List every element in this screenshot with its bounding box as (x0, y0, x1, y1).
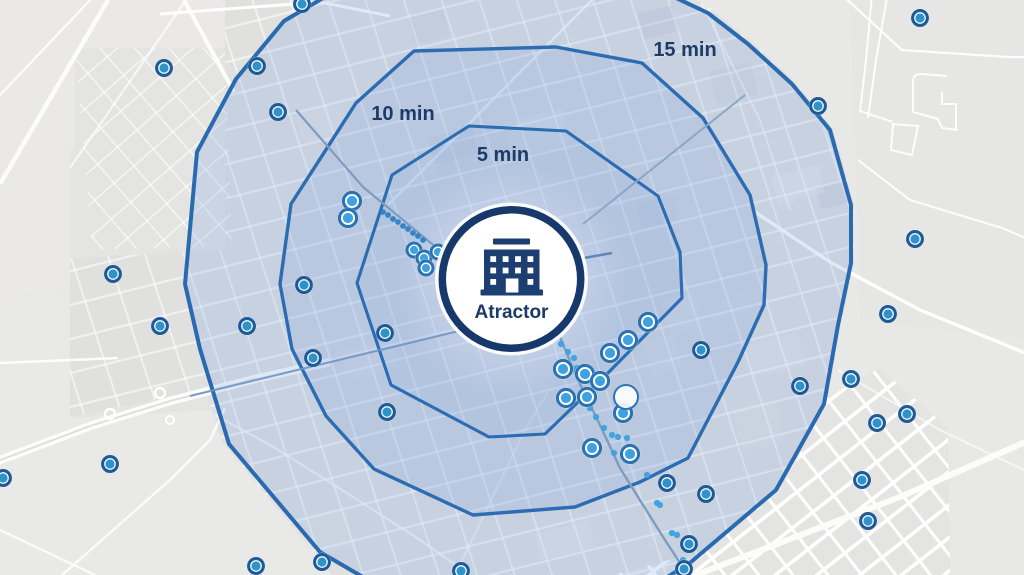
svg-text:5 min: 5 min (477, 144, 529, 166)
svg-text:Atractor: Atractor (475, 302, 550, 323)
svg-text:15 min: 15 min (653, 39, 716, 61)
svg-text:10 min: 10 min (371, 103, 434, 125)
